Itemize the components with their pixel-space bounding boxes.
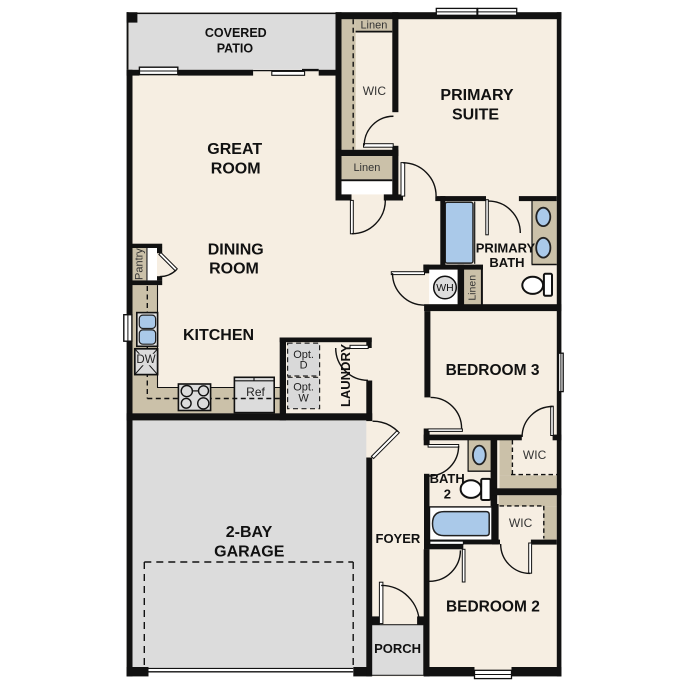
svg-text:GARAGE: GARAGE: [214, 543, 285, 560]
svg-text:WIC: WIC: [363, 84, 387, 98]
svg-text:Ref: Ref: [246, 385, 265, 399]
svg-text:BATH: BATH: [489, 255, 524, 270]
svg-text:WH: WH: [436, 282, 454, 294]
svg-text:2: 2: [444, 486, 451, 501]
svg-text:PRIMARY: PRIMARY: [440, 87, 514, 104]
svg-text:Opt.: Opt.: [293, 381, 314, 393]
svg-text:ROOM: ROOM: [211, 160, 261, 177]
svg-text:W: W: [298, 393, 309, 405]
svg-text:GREAT: GREAT: [207, 141, 262, 158]
svg-text:WIC: WIC: [523, 448, 547, 462]
svg-text:PATIO: PATIO: [217, 41, 254, 55]
svg-text:Linen: Linen: [360, 19, 387, 31]
svg-text:COVERED: COVERED: [205, 26, 267, 40]
svg-text:D: D: [300, 359, 308, 371]
svg-text:DINING: DINING: [208, 242, 264, 259]
svg-text:LAUNDRY: LAUNDRY: [338, 344, 353, 407]
svg-text:BATH: BATH: [430, 471, 465, 486]
svg-text:DW: DW: [136, 354, 155, 366]
svg-text:PORCH: PORCH: [374, 641, 421, 656]
svg-text:PRIMARY: PRIMARY: [476, 240, 536, 255]
svg-text:ROOM: ROOM: [209, 261, 259, 278]
svg-text:Linen: Linen: [466, 275, 478, 301]
svg-text:KITCHEN: KITCHEN: [183, 327, 254, 344]
svg-text:SUITE: SUITE: [452, 107, 499, 124]
svg-text:Linen: Linen: [353, 162, 380, 174]
svg-text:FOYER: FOYER: [376, 531, 421, 546]
svg-text:Pantry: Pantry: [133, 248, 145, 280]
svg-text:WIC: WIC: [509, 516, 533, 530]
svg-text:BEDROOM 3: BEDROOM 3: [446, 362, 540, 379]
svg-text:2-BAY: 2-BAY: [226, 524, 273, 541]
svg-text:BEDROOM 2: BEDROOM 2: [446, 599, 540, 616]
